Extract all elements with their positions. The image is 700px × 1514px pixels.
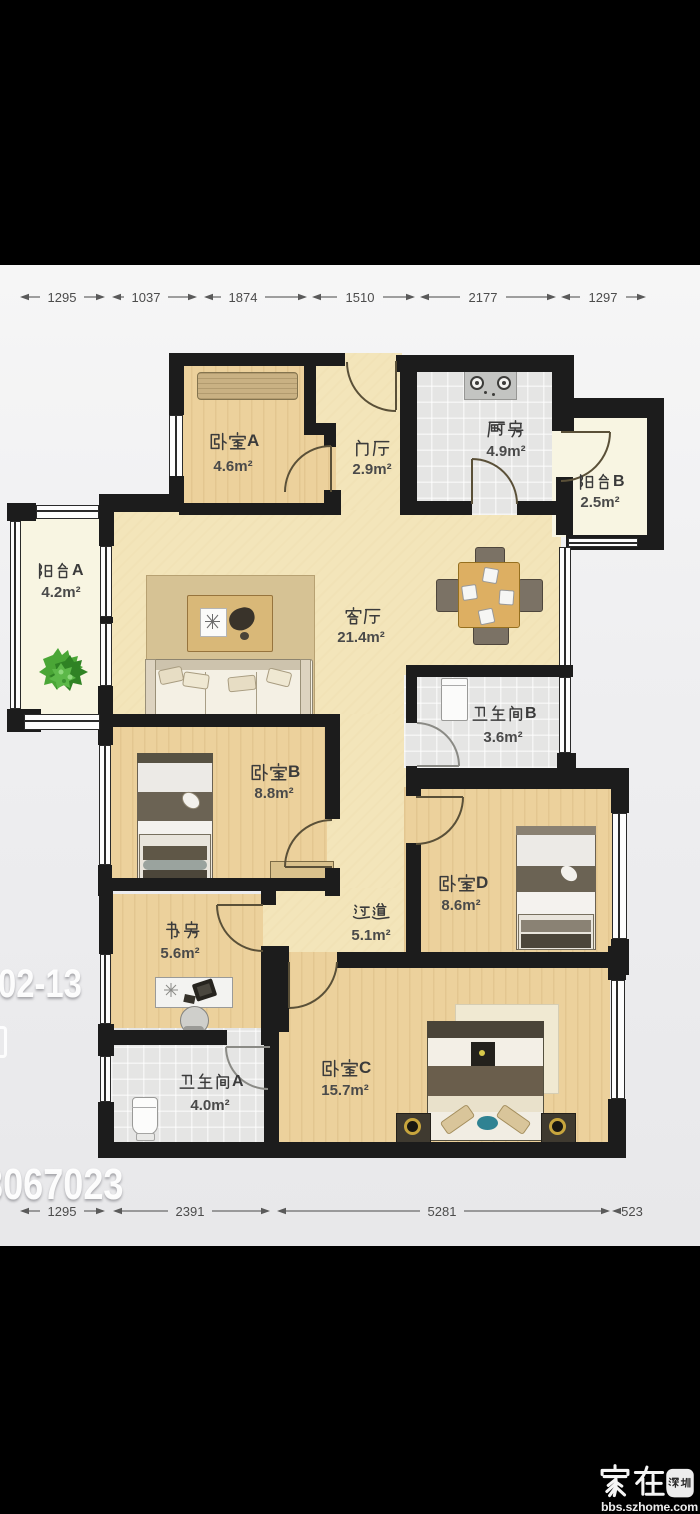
svg-text:1874: 1874 <box>229 290 258 305</box>
svg-text:5281: 5281 <box>428 1204 457 1219</box>
svg-text:523: 523 <box>621 1204 643 1219</box>
svg-text:1297: 1297 <box>589 290 618 305</box>
svg-text:1510: 1510 <box>346 290 375 305</box>
svg-text:1295: 1295 <box>48 290 77 305</box>
svg-text:1037: 1037 <box>132 290 161 305</box>
svg-text:2177: 2177 <box>469 290 498 305</box>
svg-text:2391: 2391 <box>176 1204 205 1219</box>
